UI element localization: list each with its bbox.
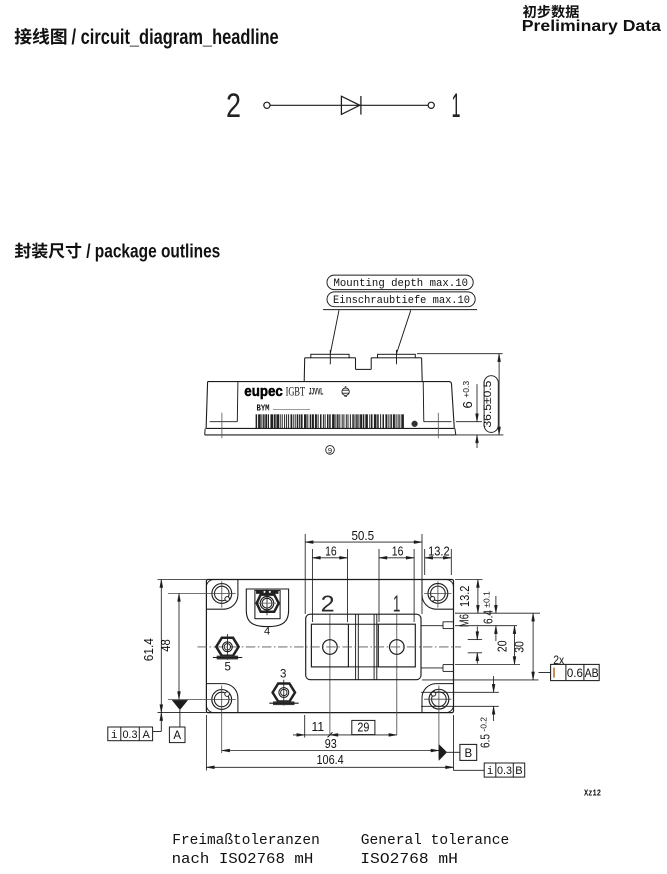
svg-text:1: 1 (393, 590, 401, 616)
svg-text:/ circuit_diagram_headline: / circuit_diagram_headline (72, 26, 279, 49)
svg-text:AB: AB (585, 666, 599, 680)
svg-text:IGBT: IGBT (286, 385, 306, 399)
svg-text:5: 5 (224, 661, 230, 673)
svg-text:2: 2 (226, 87, 241, 125)
svg-text:B: B (515, 765, 522, 777)
svg-text:Einschraubtiefe max.10: Einschraubtiefe max.10 (333, 295, 470, 307)
svg-text:11: 11 (312, 719, 325, 734)
svg-text:9: 9 (328, 446, 332, 455)
svg-text:0.6: 0.6 (567, 666, 583, 680)
svg-text:93: 93 (325, 736, 337, 751)
svg-text:6.5 -0.2: 6.5 -0.2 (477, 717, 492, 748)
svg-text:General tolerance: General tolerance (361, 833, 509, 849)
svg-text:Preliminary Data: Preliminary Data (522, 18, 662, 35)
svg-text:20: 20 (494, 641, 509, 653)
svg-text:13.2: 13.2 (428, 543, 450, 558)
svg-text:JJVVL: JJVVL (309, 386, 324, 397)
svg-text:29: 29 (357, 720, 369, 735)
svg-text:Freimaßtoleranzen: Freimaßtoleranzen (172, 833, 319, 849)
svg-text:50.5: 50.5 (351, 528, 374, 543)
svg-text:106.4: 106.4 (316, 752, 343, 767)
svg-text:M6: M6 (457, 614, 472, 627)
svg-text:0.3: 0.3 (123, 729, 138, 741)
svg-text:16: 16 (325, 543, 337, 558)
svg-text:A: A (173, 730, 181, 742)
svg-text:61.4: 61.4 (141, 638, 156, 661)
svg-text:/ package outlines: / package outlines (86, 240, 220, 262)
svg-text:BYM: BYM (257, 404, 270, 414)
svg-text:30: 30 (511, 641, 526, 653)
svg-text:Mounting depth max.10: Mounting depth max.10 (334, 278, 469, 290)
svg-text:i: i (111, 730, 118, 742)
svg-text:16: 16 (392, 543, 404, 558)
svg-text:ISO2768 mH: ISO2768 mH (360, 852, 458, 868)
svg-text:6 +0.3: 6 +0.3 (460, 381, 475, 409)
svg-text:48: 48 (158, 639, 173, 652)
svg-text:3: 3 (280, 669, 286, 681)
svg-text:i: i (487, 766, 494, 778)
svg-text:A: A (143, 729, 151, 741)
svg-text:0.3: 0.3 (497, 765, 512, 777)
svg-text:nach ISO2768 mH: nach ISO2768 mH (172, 852, 314, 868)
svg-text:1: 1 (452, 87, 461, 125)
svg-text:13.2: 13.2 (457, 586, 472, 608)
svg-text:_________: _________ (272, 402, 310, 412)
svg-text:2: 2 (321, 590, 335, 616)
svg-text:4: 4 (264, 625, 270, 637)
svg-text:eupec: eupec (244, 383, 282, 400)
svg-text:6.4 ±0.1: 6.4 ±0.1 (481, 591, 496, 624)
svg-text:B: B (464, 748, 472, 760)
svg-text:36.5±0.5: 36.5±0.5 (482, 381, 494, 428)
svg-text:Xz12: Xz12 (584, 789, 601, 799)
